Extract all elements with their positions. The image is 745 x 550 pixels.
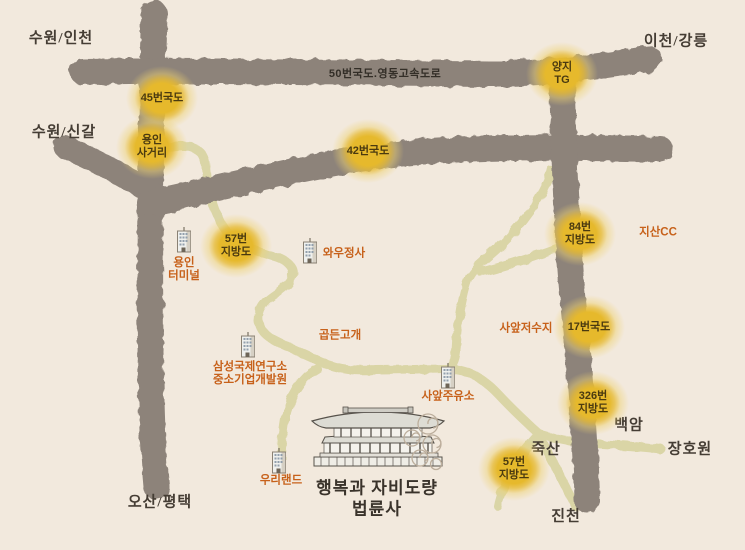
- region-label-osan-pyeongtaek: 오산/평택: [128, 491, 192, 512]
- road-route42: [150, 148, 660, 203]
- map-roads-art: [0, 0, 745, 550]
- region-label-janghowon: 장호원: [668, 438, 712, 459]
- badge-local57-north: 57번지방도: [200, 214, 272, 278]
- badge-yangji-tg: 양지TG: [526, 42, 598, 106]
- place-label-wooriland: 우리랜드: [260, 475, 302, 488]
- temple-icon: [312, 407, 444, 466]
- temple-name: 법륜사: [352, 495, 402, 520]
- badge-local57-south: 57번지방도: [478, 437, 550, 501]
- place-label-gopdeun-pass: 곱든고개: [319, 330, 361, 343]
- badge-route17: 17번국도: [553, 295, 625, 359]
- place-label-wawoojeongsa: 와우정사: [323, 248, 365, 261]
- region-label-icheon-gangneung: 이천/강릉: [644, 30, 708, 51]
- road-label-route50: 50번국도.영동고속도로: [329, 65, 441, 81]
- building-icon: [273, 448, 286, 473]
- place-label-yongin-terminal: 용인터미널: [168, 257, 200, 283]
- place-label-jisan-cc: 지산CC: [639, 227, 677, 240]
- place-label-saap-reservoir: 사앞저수지: [500, 323, 553, 336]
- region-label-suwon-singal: 수원/신갈: [32, 121, 96, 142]
- building-icon: [242, 332, 255, 357]
- building-icon: [304, 238, 317, 263]
- building-icon: [442, 363, 455, 388]
- place-label-saap-gas-station: 사앞주유소: [422, 391, 475, 404]
- building-icon: [178, 227, 191, 252]
- badge-route42: 42번국도: [332, 119, 404, 183]
- badge-yongin-sageori: 용인사거리: [116, 115, 188, 179]
- badge-local84: 84번지방도: [544, 202, 616, 266]
- map-canvas: 수원/인천 이천/강릉 수원/신갈 오산/평택 백암 장호원 죽산 진천 50번…: [0, 0, 745, 550]
- region-label-jincheon: 진천: [551, 505, 581, 526]
- place-label-samsung-institute: 삼성국제연구소중소기업개발원: [213, 361, 287, 387]
- badge-local326: 326번지방도: [557, 371, 629, 435]
- region-label-suwon-incheon: 수원/인천: [29, 27, 93, 48]
